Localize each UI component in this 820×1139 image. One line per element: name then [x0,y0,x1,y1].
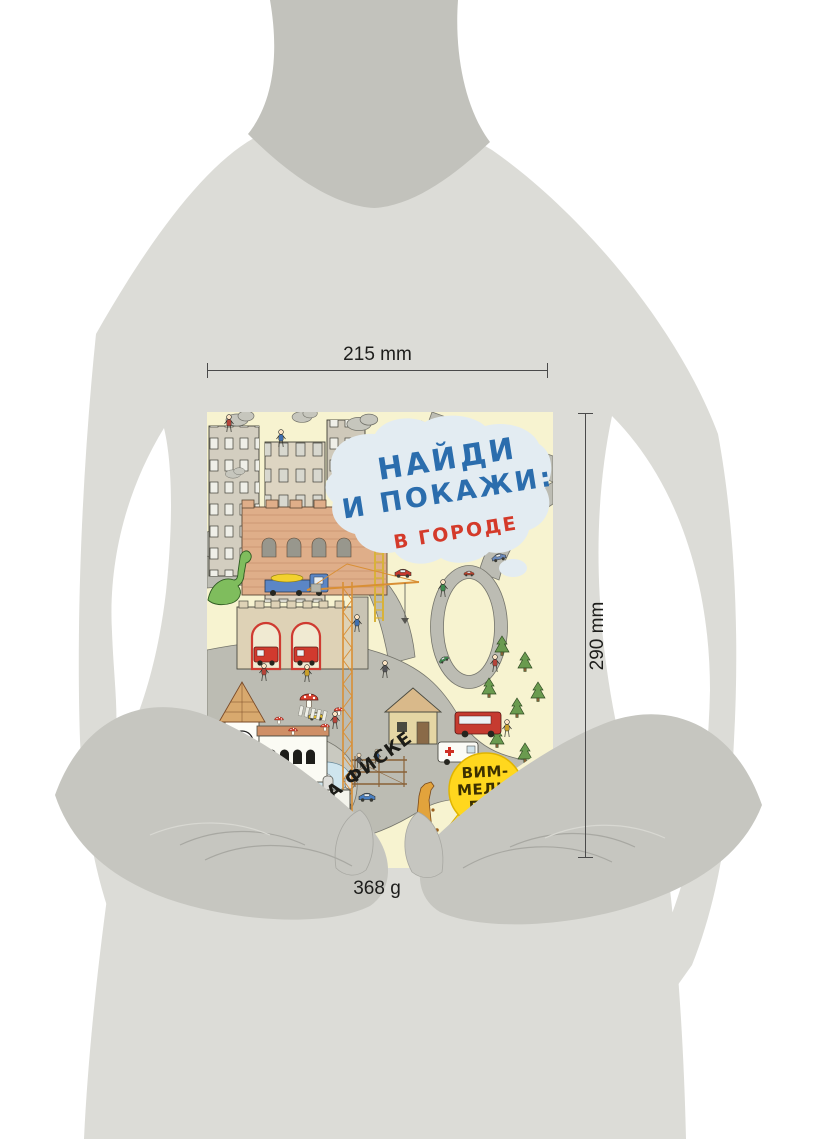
dimension-width-line: 215 mm [207,370,548,371]
dimension-width-label: 215 mm [343,344,412,366]
width-tick-left [207,363,208,378]
dimension-height-label: 290 mm [587,596,609,676]
lap-shape [84,862,686,1139]
width-tick-right [547,363,548,378]
weight-label: 368 g [337,878,417,900]
fire-station [237,597,368,669]
publisher-mark: махаон [538,784,546,815]
red-bus [455,712,501,737]
wimmelbuch-badge-text: ВИМ- МЕЛЬ- БУХ [449,762,524,816]
cloud-tail [499,559,527,577]
book-cover: НАЙДИ И ПОКАЖИ: В ГОРОДЕ АННА ФИСКЕ ВИМ-… [207,412,553,868]
dimension-height-line: 290 mm [585,413,586,858]
height-tick-bottom [578,857,593,858]
product-dimensions-image: НАЙДИ И ПОКАЖИ: В ГОРОДЕ АННА ФИСКЕ ВИМ-… [0,0,820,1139]
height-tick-top [578,413,593,414]
